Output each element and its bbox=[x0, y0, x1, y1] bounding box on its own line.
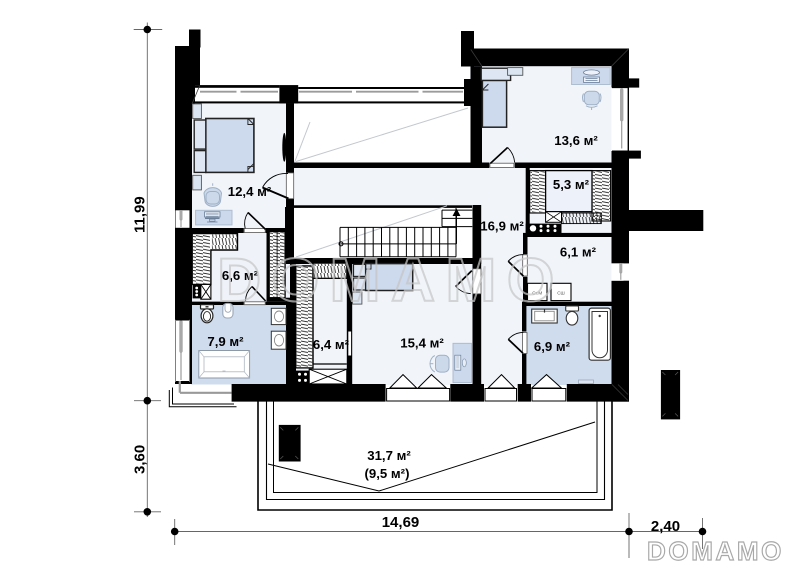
svg-text:6,9 м²: 6,9 м² bbox=[534, 339, 571, 354]
svg-text:(9,5 м²): (9,5 м²) bbox=[365, 466, 410, 481]
svg-text:5,3 м²: 5,3 м² bbox=[553, 177, 590, 192]
svg-text:7,9 м²: 7,9 м² bbox=[207, 334, 244, 349]
svg-text:2,40: 2,40 bbox=[651, 518, 680, 535]
svg-text:6,1 м²: 6,1 м² bbox=[560, 244, 597, 259]
svg-text:15,4 м²: 15,4 м² bbox=[400, 335, 444, 350]
svg-text:DOMAMO: DOMAMO bbox=[217, 246, 565, 314]
svg-text:DOMAMO: DOMAMO bbox=[647, 536, 784, 566]
svg-text:13,6 м²: 13,6 м² bbox=[554, 133, 598, 148]
svg-text:31,7 м²: 31,7 м² bbox=[367, 448, 411, 463]
svg-text:16,9 м²: 16,9 м² bbox=[480, 218, 524, 233]
svg-text:12,4 м²: 12,4 м² bbox=[228, 184, 272, 199]
svg-text:6,4 м²: 6,4 м² bbox=[313, 337, 350, 352]
svg-text:14,69: 14,69 bbox=[382, 514, 420, 531]
svg-text:11,99: 11,99 bbox=[132, 196, 149, 233]
svg-text:3,60: 3,60 bbox=[132, 445, 149, 474]
